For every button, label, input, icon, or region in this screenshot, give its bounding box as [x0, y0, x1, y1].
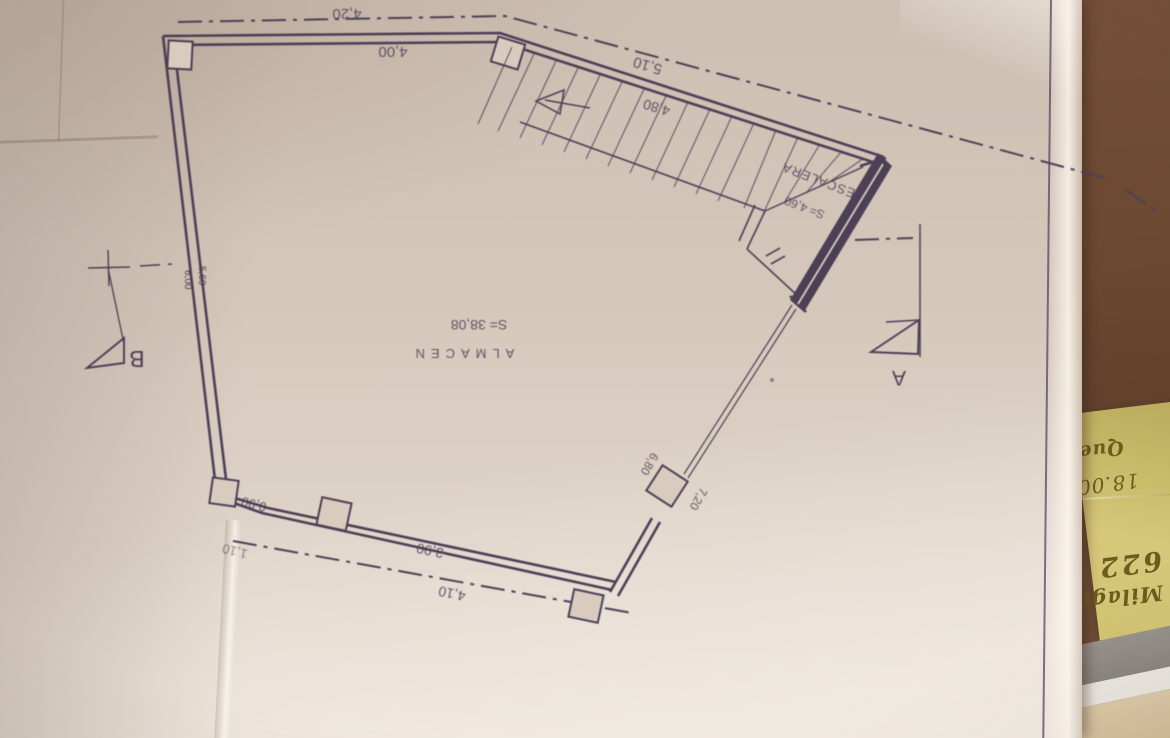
stair-area: S= 4,60 — [782, 194, 826, 222]
walls — [163, 33, 886, 596]
section-a-arrow — [871, 320, 919, 354]
dim-bottom-outer: 4,10 — [437, 583, 467, 604]
room-area: S= 38,08 — [451, 317, 508, 333]
front-wall-outer — [610, 518, 652, 592]
photo-of-floor-plan: Milagr 622 18.00 Que — [0, 0, 1170, 738]
dim-front-lower: 7,20 — [686, 485, 710, 513]
pillar-bottom-left — [209, 477, 238, 506]
glazing-line-1 — [684, 305, 792, 474]
pillar-top-mid — [491, 36, 525, 69]
dim-top-outer: 4,20 — [332, 5, 361, 22]
pencil-note-2: 5,60 — [196, 266, 207, 286]
top-boundary-line-tail — [1126, 190, 1160, 214]
section-b-arrow — [87, 338, 124, 368]
top-boundary-line — [178, 16, 1112, 180]
ink-dot — [770, 378, 774, 382]
pillar-top-left — [167, 40, 192, 69]
left-wall-outer — [163, 36, 217, 497]
plan-labels: 4,20 4,00 5,10 4,80 ESCALERA S= 4,60 S= … — [221, 5, 858, 605]
pillar-bottom-right — [568, 589, 603, 623]
section-b-label: B — [129, 346, 144, 372]
glazed-front — [684, 305, 796, 478]
stair-direction-arrow — [536, 90, 590, 114]
pillar-bottom-mid — [316, 497, 351, 531]
stair-treads — [478, 47, 864, 212]
section-a-label: A — [892, 366, 906, 389]
section-marker-b: B — [87, 250, 172, 372]
bottom-wall-inner — [228, 496, 616, 582]
section-b-dash — [140, 264, 172, 266]
pencil-note-1: 6,00 — [182, 270, 193, 290]
section-b-line — [108, 268, 124, 344]
floor-plan-drawing: A B 4,20 4,00 5,10 4,80 ESCALERA S= 4,60… — [0, 0, 1170, 738]
pillars — [167, 36, 687, 622]
glazing-line-2 — [688, 309, 796, 478]
top-wall-inner — [172, 42, 879, 164]
stair-inner-string — [520, 122, 765, 211]
dim-stair-width: 4,80 — [641, 96, 672, 119]
dim-bottom-corner: 0,90 — [240, 494, 268, 515]
under-stair-closet — [739, 205, 799, 297]
dim-top-inner: 4,00 — [378, 43, 407, 60]
stair-name: ESCALERA — [780, 159, 858, 201]
section-a-lead-line — [855, 238, 913, 240]
dim-stair-outer: 5,10 — [631, 53, 664, 78]
section-marker-a: A — [871, 224, 920, 389]
room-name: ALMACEN — [410, 346, 515, 361]
front-wall-inner — [618, 522, 660, 596]
